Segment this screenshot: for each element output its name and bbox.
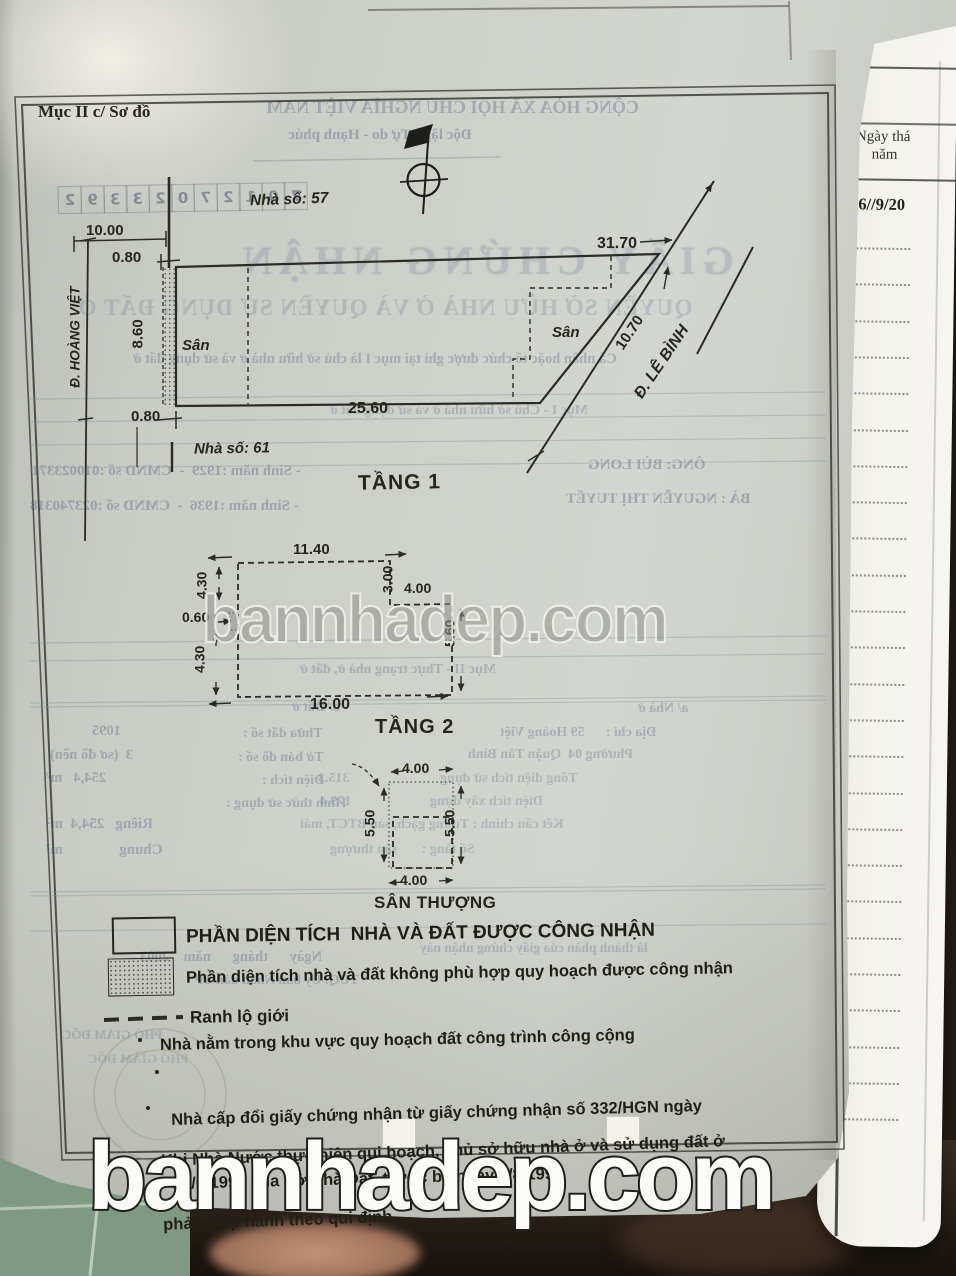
watermark-bottom: bannhadep.com <box>88 1122 772 1232</box>
photo-of-land-certificate: Ngày thá năm 06//9/20 CỘNG HÒA XÃ HỘI CH… <box>0 0 956 1276</box>
watermark-middle: bannhadep.com <box>202 580 667 658</box>
f2-dim-right: 5.50 <box>442 810 457 837</box>
dim-0-80-bottom: 0.80 <box>131 409 160 425</box>
legend-row3-text: Ranh lộ giới <box>190 1005 289 1029</box>
legend-row2-text: Phần diện tích nhà và đất không phù hợp … <box>186 958 733 989</box>
f2-dim-top: 4.00 <box>402 761 429 776</box>
floor2-title: TẦNG 2 <box>375 717 454 738</box>
floor1-title: TẦNG 1 <box>358 471 441 494</box>
dim-0-80-top: 0.80 <box>112 250 141 266</box>
house-number-61: Nhà số: 61 <box>194 440 270 457</box>
dim-31-70: 31.70 <box>597 236 637 253</box>
section-label: Mục II c/ Sơ đồ <box>38 103 150 121</box>
f2-dim-left: 5.50 <box>362 810 377 837</box>
f1-dim-bottom: 16.00 <box>310 697 350 714</box>
house-number-57: Nhà số: 57 <box>250 191 329 210</box>
dim-8-60: 8.60 <box>131 319 147 348</box>
f1-dim-top: 11.40 <box>293 542 330 558</box>
dim-10-70: 10.70 <box>607 304 654 363</box>
legend-row4-text: Nhà nằm trong khu vực quy hoạch đất công… <box>160 1025 635 1056</box>
roof-terrace-label: SÂN THƯỢNG <box>374 894 496 912</box>
legend-row1-text: PHẦN DIỆN TÍCH NHÀ VÀ ĐẤT ĐƯỢC CÔNG NHẬN <box>186 919 655 950</box>
dim-25-60: 25.60 <box>348 401 388 418</box>
yard-label-left: Sân <box>182 338 210 354</box>
f2-dim-bottom: 4.00 <box>400 873 427 888</box>
yard-label-right: Sân <box>552 325 580 341</box>
street-hoang-viet: Đ. HOÀNG VIỆT <box>68 250 82 425</box>
dim-10-00: 10.00 <box>86 223 124 239</box>
